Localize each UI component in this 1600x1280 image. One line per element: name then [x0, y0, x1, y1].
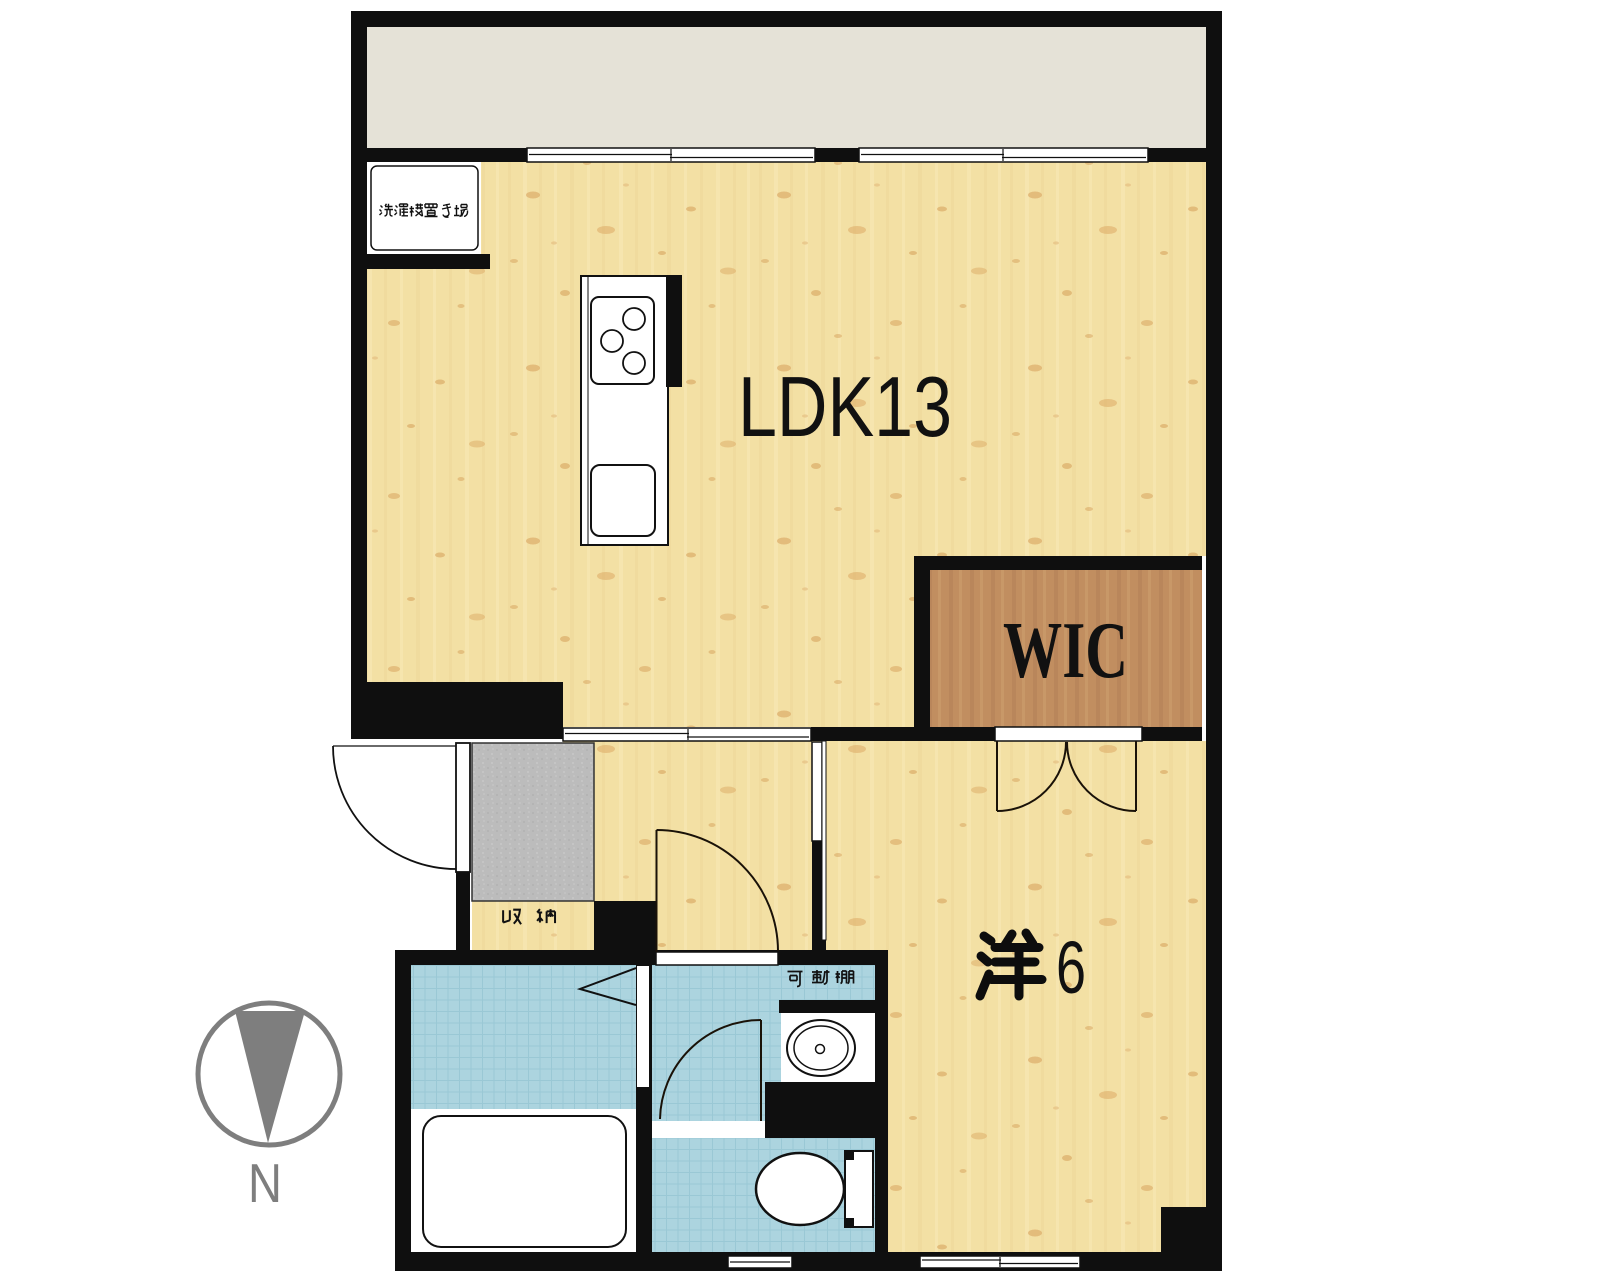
svg-text:N: N — [248, 1152, 282, 1214]
svg-text:6: 6 — [1056, 926, 1086, 1009]
svg-text:WIC: WIC — [1003, 607, 1128, 695]
svg-text:LDK13: LDK13 — [738, 360, 952, 455]
